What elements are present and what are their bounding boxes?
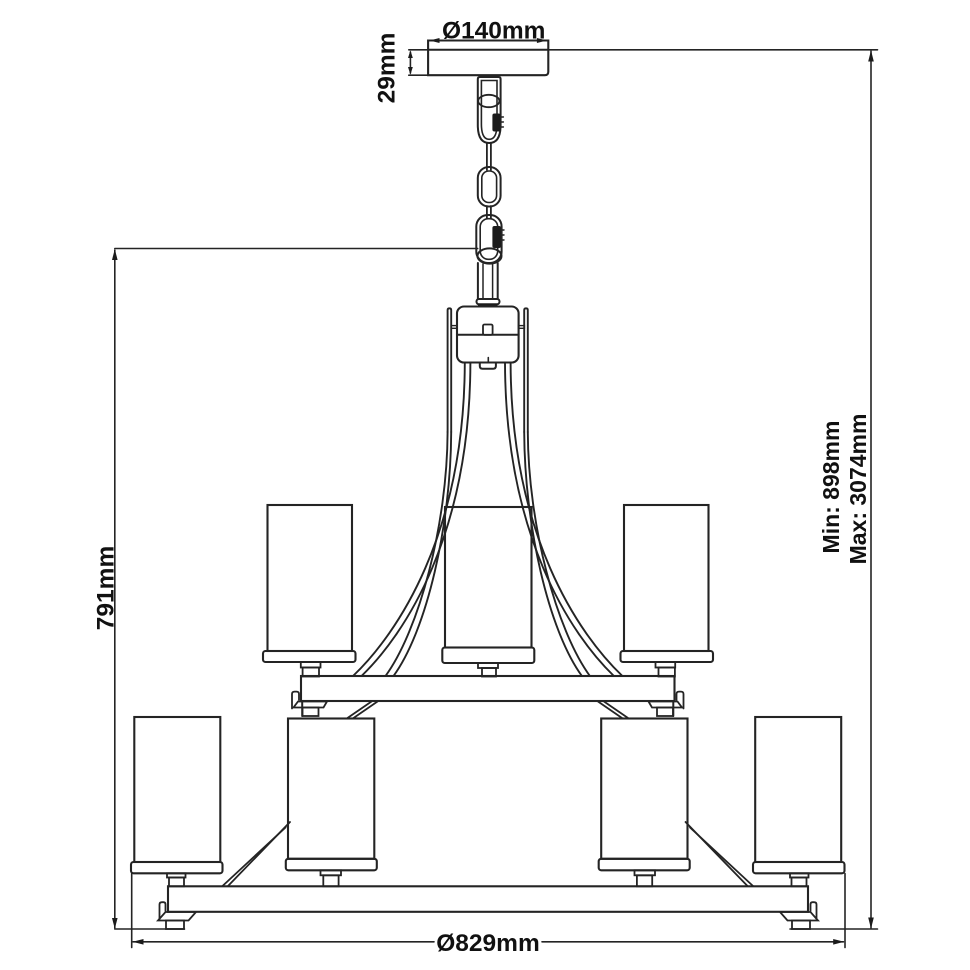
svg-text:29mm: 29mm: [374, 33, 401, 104]
svg-text:Max: 3074mm: Max: 3074mm: [845, 414, 871, 565]
svg-text:Min: 898mm: Min: 898mm: [818, 421, 844, 554]
svg-text:791mm: 791mm: [93, 546, 120, 630]
svg-text:Ø829mm: Ø829mm: [436, 930, 540, 957]
